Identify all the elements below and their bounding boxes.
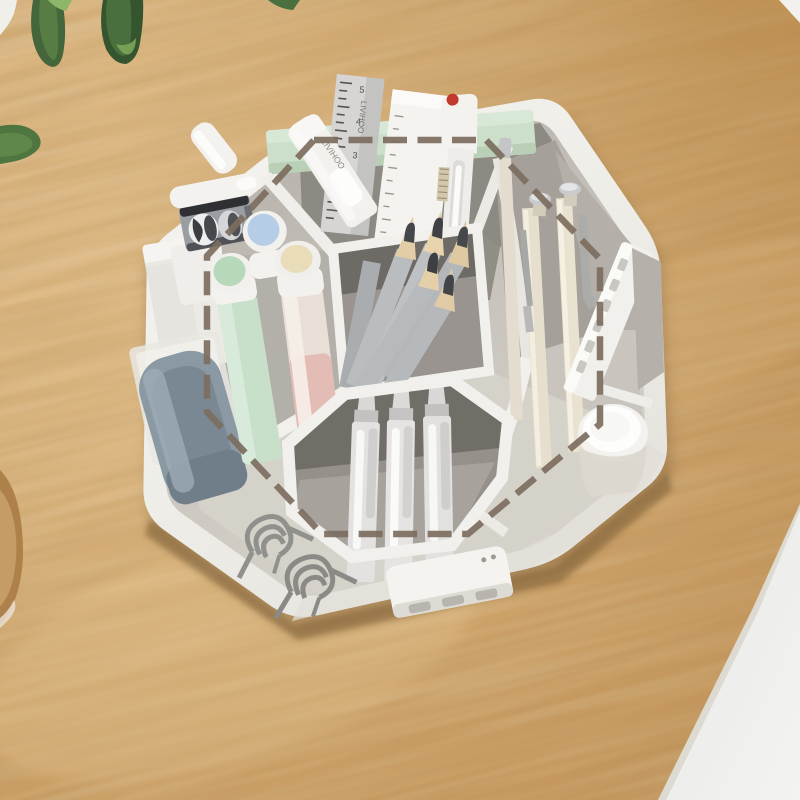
svg-text:3: 3 <box>352 150 358 160</box>
svg-text:5: 5 <box>359 84 365 94</box>
